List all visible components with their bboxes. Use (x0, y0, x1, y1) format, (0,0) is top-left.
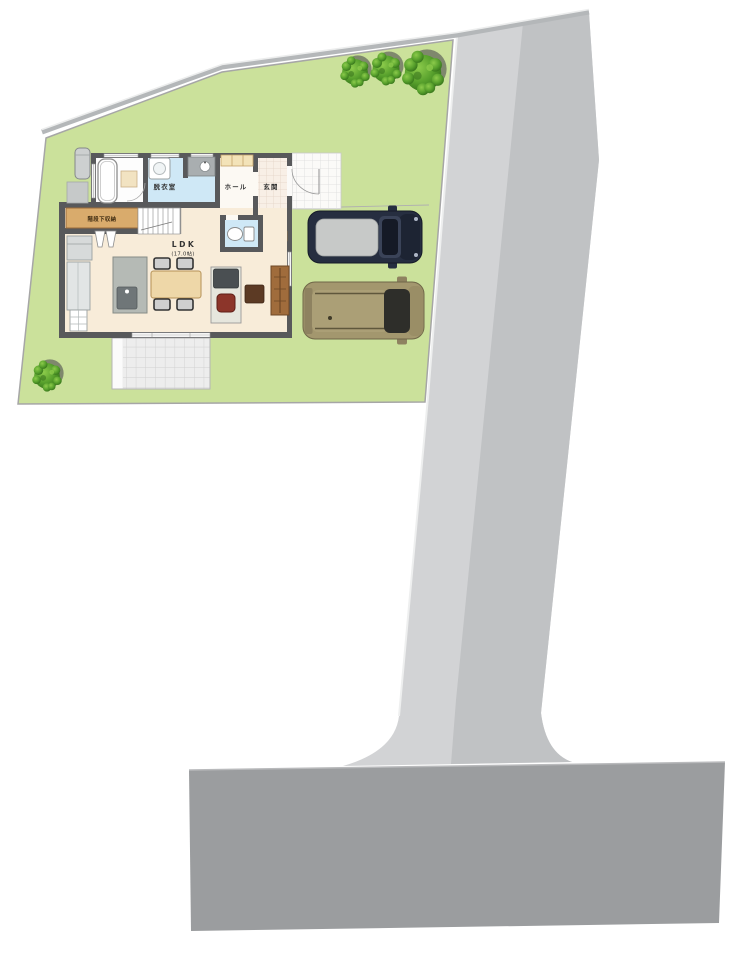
ottoman (245, 285, 264, 303)
tv-icon (214, 269, 239, 288)
desk-unit (211, 267, 241, 323)
label-dressing-room: 脱衣室 (154, 182, 177, 191)
bathtub-icon (98, 159, 117, 203)
stairs (138, 208, 180, 234)
house: 階段下収納 (59, 153, 319, 338)
vanity-icon (188, 157, 215, 176)
site-plan-image: 階段下収納 (0, 0, 755, 960)
under-stairs-storage: 階段下収納 (66, 208, 138, 228)
hall-genkan-opening (253, 172, 258, 196)
kitchen-island (113, 257, 147, 313)
dining-chair (177, 258, 193, 269)
car-navy-suv (308, 206, 422, 269)
label-hall: ホール (225, 183, 248, 191)
dining-chair (154, 258, 170, 269)
bath-counter (121, 171, 137, 187)
label-entrance: 玄関 (263, 182, 278, 191)
desk-chair (217, 294, 235, 312)
shelf (271, 266, 289, 315)
label-under-stairs-storage: 階段下収納 (88, 215, 117, 223)
washing-machine-icon (149, 158, 170, 179)
terrace (112, 338, 210, 389)
shoe-cabinet (221, 155, 253, 166)
car-khaki-suv (303, 277, 424, 345)
site-plan-canvas: 階段下収納 (0, 0, 755, 960)
dining-chair (154, 299, 170, 310)
dining-table (151, 271, 201, 298)
road-lower (189, 762, 725, 931)
dining-chair (177, 299, 193, 310)
room-wc (220, 215, 263, 252)
equipment-pad (67, 182, 88, 203)
label-ldk-area: (17.0帖) (171, 250, 194, 258)
water-heater-icon (75, 148, 90, 179)
entrance-porch (292, 153, 341, 209)
label-ldk: LDK (172, 240, 197, 249)
